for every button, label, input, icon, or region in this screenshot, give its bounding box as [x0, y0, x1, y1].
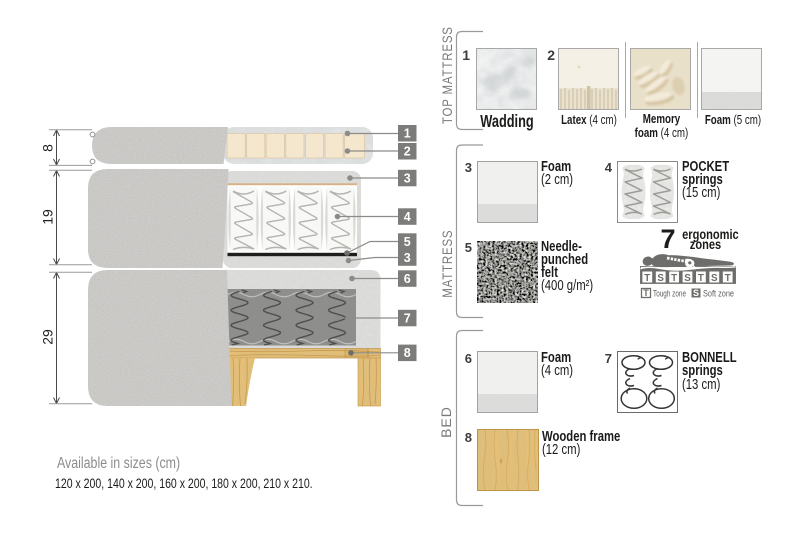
svg-text:S: S [693, 288, 699, 298]
svg-text:19: 19 [40, 209, 56, 225]
svg-text:8: 8 [40, 144, 56, 152]
svg-text:S: S [711, 273, 718, 284]
svg-text:7: 7 [404, 311, 411, 325]
svg-text:Soft zone: Soft zone [703, 289, 734, 299]
svg-text:T: T [671, 273, 677, 284]
svg-text:5: 5 [404, 235, 411, 249]
svg-text:S: S [657, 273, 664, 284]
svg-text:6: 6 [404, 272, 411, 286]
svg-text:2: 2 [404, 145, 411, 159]
svg-text:3: 3 [404, 251, 411, 265]
svg-text:S: S [684, 273, 691, 284]
svg-text:3: 3 [404, 171, 411, 185]
svg-text:4: 4 [404, 210, 411, 224]
svg-text:1: 1 [404, 127, 411, 141]
svg-text:T: T [644, 273, 650, 284]
svg-text:8: 8 [404, 346, 411, 360]
svg-text:29: 29 [40, 329, 56, 345]
svg-text:Tough zone: Tough zone [653, 289, 686, 299]
svg-text:T: T [698, 273, 704, 284]
svg-text:T: T [643, 288, 649, 298]
svg-text:T: T [725, 273, 731, 284]
